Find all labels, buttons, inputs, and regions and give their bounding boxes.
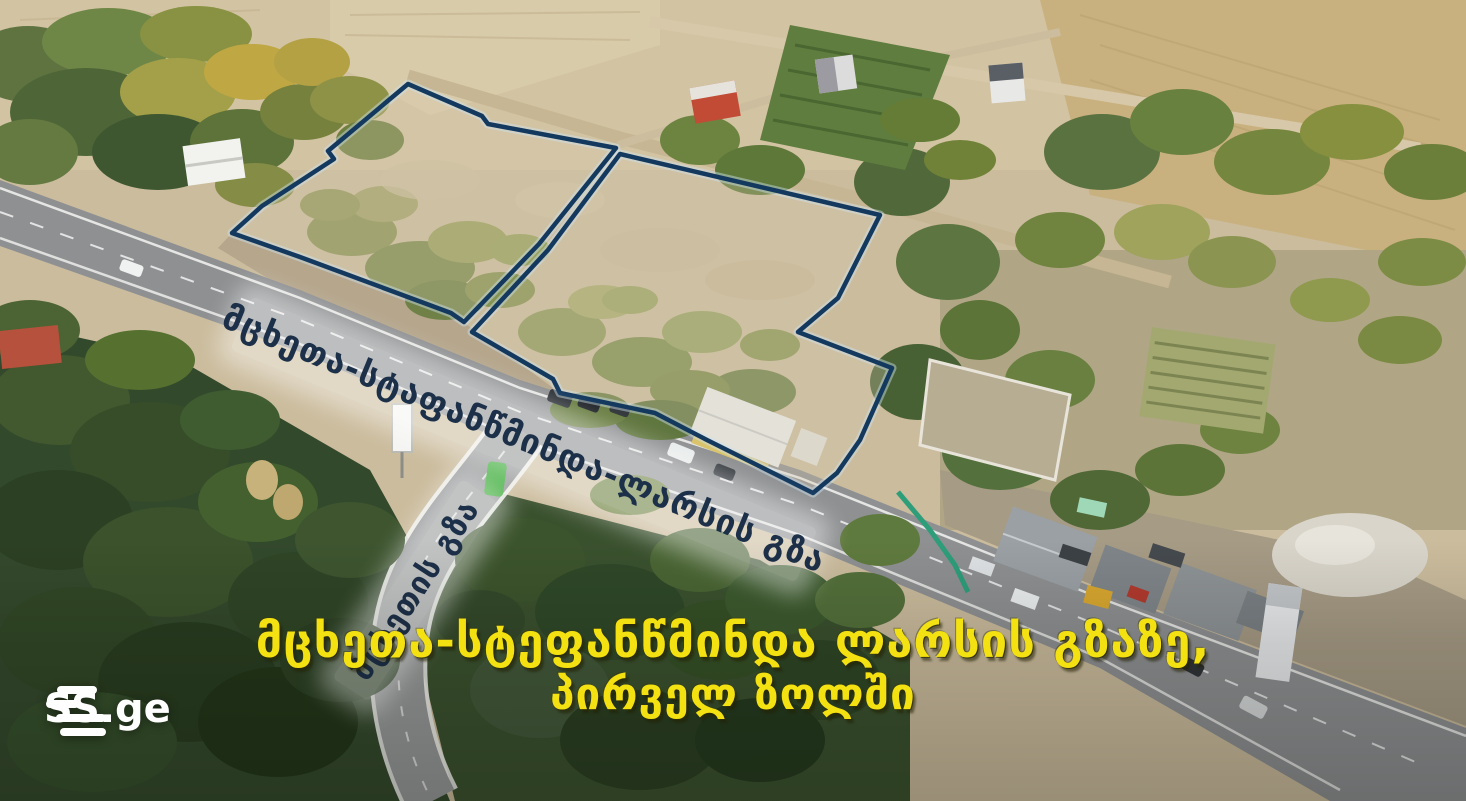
ssge-logo: SS.ge — [44, 686, 171, 732]
ssge-logo-icon — [44, 686, 114, 740]
caption-line-1: მცხეთა-სტეფანწმინდა ლარსის გზაზე, — [0, 614, 1466, 669]
aerial-listing-image: მცხეთის გზა მცხეთა-სტაფანწმინდა-ლარსის გ… — [0, 0, 1466, 801]
listing-caption: მცხეთა-სტეფანწმინდა ლარსის გზაზე, პირველ… — [0, 614, 1466, 721]
caption-line-2: პირველ ზოლში — [0, 669, 1466, 721]
